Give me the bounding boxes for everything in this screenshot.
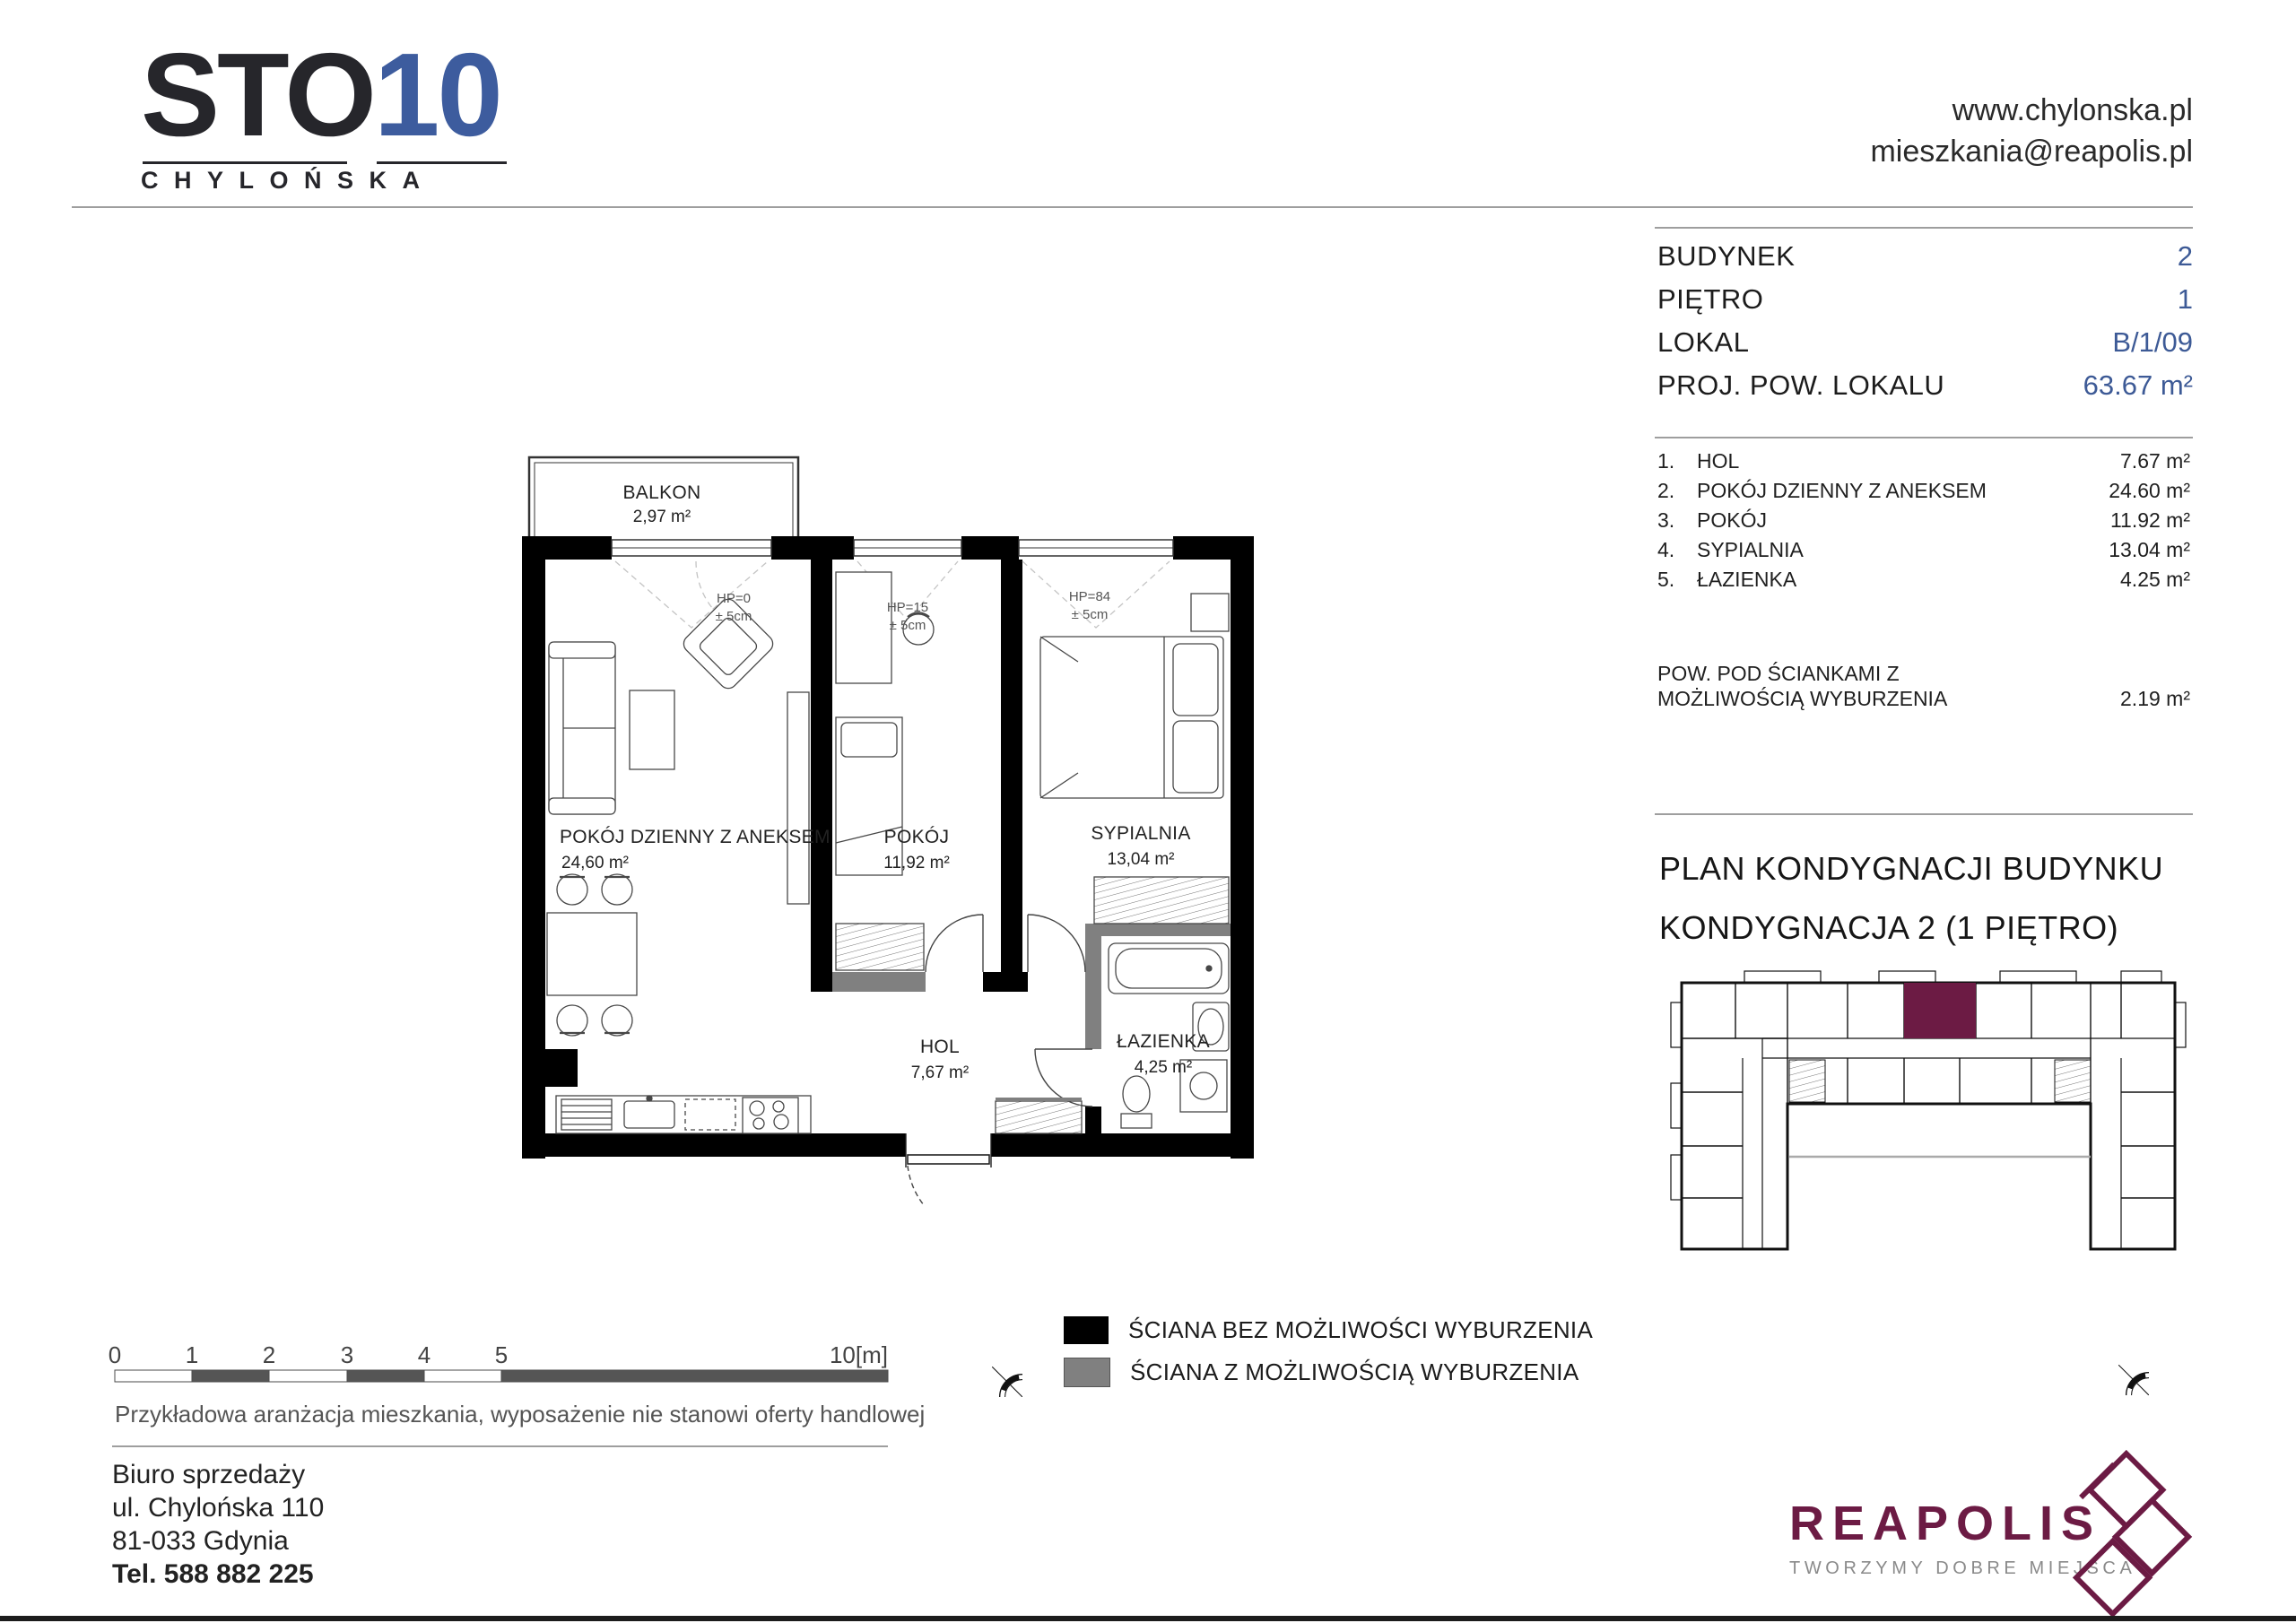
kitchen: [556, 1096, 811, 1133]
label-sypialnia: SYPIALNIA: [1091, 823, 1190, 844]
scale-tick: 0: [109, 1341, 121, 1368]
single-bed: [836, 717, 902, 875]
hp-annotations: HP=0 ± 5cm HP=15 ± 5cm HP=84 ± 5cm: [716, 589, 1111, 633]
logo-sto: STO: [141, 29, 374, 161]
info-value: 63.67 m²: [2083, 369, 2193, 402]
note-value: 2.19 m²: [2120, 686, 2190, 711]
building-keyplan: [1655, 949, 2211, 1258]
note-line2: MOŻLIWOŚCIĄ WYBURZENIA: [1657, 686, 1947, 711]
legend-row-solid-wall: ŚCIANA BEZ MOŻLIWOŚCI WYBURZENIA: [1064, 1316, 1593, 1344]
info-label: PROJ. POW. LOKALU: [1657, 369, 1944, 402]
dining-set: [547, 874, 637, 1036]
reapolis-diamonds-icon: [2054, 1449, 2206, 1623]
tv-unit: [787, 692, 809, 904]
room-number: 1.: [1657, 449, 1697, 473]
hp-label: HP=15: [887, 600, 928, 615]
sto10-logo: STO10 CHYLOŃSKA: [141, 36, 500, 195]
hp-label: ± 5cm: [1072, 607, 1109, 622]
header-divider: [72, 206, 2193, 208]
info-label: BUDYNEK: [1657, 240, 1795, 273]
keyplan-title-2: KONDYGNACJA 2 (1 PIĘTRO): [1659, 909, 2118, 947]
legend-row-demolishable-wall: ŚCIANA Z MOŻLIWOŚCIĄ WYBURZENIA: [1064, 1358, 1578, 1387]
hp-label: HP=84: [1069, 589, 1110, 604]
living-furniture: [547, 595, 809, 1036]
panel-divider-top: [1655, 227, 2193, 229]
toilet: [1121, 1076, 1152, 1128]
balcony: BALKON 2,97 m²: [529, 457, 798, 536]
door-pokoj: [926, 915, 983, 972]
keyplan-stairs-left: [1789, 1060, 1825, 1102]
room-name: HOL: [1697, 449, 1739, 473]
info-value: 2: [2178, 240, 2193, 273]
scale-tick: 1: [186, 1341, 198, 1368]
balcony-name: BALKON: [623, 482, 701, 503]
room-area: 11.92 m²: [2110, 508, 2190, 533]
door-entrance: [906, 1133, 991, 1205]
room-row: 1. HOL 7.67 m²: [1657, 447, 2190, 476]
office-phone: Tel. 588 882 225: [112, 1558, 324, 1591]
scale-tick: 4: [418, 1341, 430, 1368]
floorplan-sheet: STO10 CHYLOŃSKA www.chylonska.pl mieszka…: [0, 0, 2296, 1623]
room-number: 2.: [1657, 479, 1697, 503]
kitchen-drawers: [561, 1099, 612, 1130]
hp-label: ± 5cm: [716, 609, 752, 624]
keyplan-title-1: PLAN KONDYGNACJI BUDYNKU: [1659, 850, 2163, 888]
email: mieszkania@reapolis.pl: [1870, 131, 2193, 172]
compass-icon: [935, 1309, 1022, 1397]
office-line: ul. Chylońska 110: [112, 1491, 324, 1524]
window-living: [612, 540, 771, 556]
room-number: 5.: [1657, 568, 1697, 592]
label-hol-area: 7,67 m²: [911, 1063, 969, 1082]
door-sypialnia: [1028, 915, 1085, 972]
double-bed: [1040, 637, 1223, 798]
info-row-powierzchnia: PROJ. POW. LOKALU 63.67 m²: [1657, 364, 2193, 407]
contact-block: www.chylonska.pl mieszkania@reapolis.pl: [1870, 90, 2193, 172]
office-line: Biuro sprzedaży: [112, 1458, 324, 1491]
room-area: 13.04 m²: [2109, 538, 2190, 562]
scale-ticks: 0 1 2 3 4 5 10[m]: [109, 1341, 888, 1368]
office-line: 81-033 Gdynia: [112, 1524, 324, 1558]
note-line1: POW. POD ŚCIANKAMI Z: [1657, 661, 2190, 686]
legend-label: ŚCIANA BEZ MOŻLIWOŚCI WYBURZENIA: [1128, 1316, 1593, 1344]
info-row-pietro: PIĘTRO 1: [1657, 278, 2193, 321]
legend-swatch-gray: [1064, 1358, 1110, 1387]
hp-label: ± 5cm: [890, 618, 926, 633]
page-bottom-border: [0, 1616, 2296, 1621]
scale-tick: 3: [341, 1341, 353, 1368]
legend-swatch-black: [1064, 1316, 1109, 1344]
room-row: 5. ŁAZIENKA 4.25 m²: [1657, 565, 2190, 595]
room-name: POKÓJ DZIENNY Z ANEKSEM: [1697, 479, 1987, 503]
nightstand: [1191, 594, 1229, 631]
room-name: SYPIALNIA: [1697, 538, 1804, 562]
coffee-table: [630, 690, 674, 769]
label-pokoj: POKÓJ: [884, 827, 950, 847]
info-row-lokal: LOKAL B/1/09: [1657, 321, 2193, 364]
room-area: 7.67 m²: [2120, 449, 2190, 473]
hp-label: HP=0: [717, 591, 751, 606]
doors: [906, 915, 1092, 1205]
scale-tick: 2: [263, 1341, 275, 1368]
scale-segments: [115, 1370, 888, 1382]
info-label: LOKAL: [1657, 326, 1749, 359]
balcony-area: 2,97 m²: [633, 508, 691, 526]
scale-tick: 5: [495, 1341, 508, 1368]
demolition-note: POW. POD ŚCIANKAMI Z MOŻLIWOŚCIĄ WYBURZE…: [1657, 661, 2190, 711]
logo-rule-left: [143, 161, 347, 164]
scale-end-label: 10[m]: [830, 1341, 888, 1368]
room-name: POKÓJ: [1697, 508, 1767, 533]
room-row: 4. SYPIALNIA 13.04 m²: [1657, 535, 2190, 565]
room-row: 2. POKÓJ DZIENNY Z ANEKSEM 24.60 m²: [1657, 476, 2190, 506]
logo-subtitle: CHYLOŃSKA: [141, 167, 500, 195]
keyplan-highlighted-unit: [1904, 983, 1976, 1038]
room-number: 4.: [1657, 538, 1697, 562]
room-name: ŁAZIENKA: [1697, 568, 1796, 592]
hol-wardrobe: [996, 1099, 1082, 1133]
room-number: 3.: [1657, 508, 1697, 533]
panel-divider-keyplan: [1655, 813, 2193, 815]
panel-divider-rooms: [1655, 437, 2193, 438]
scale-bar: 0 1 2 3 4 5 10[m]: [90, 1336, 915, 1399]
info-value: B/1/09: [2112, 326, 2193, 359]
label-living-area: 24,60 m²: [561, 854, 629, 872]
logo-text: STO10: [141, 36, 500, 154]
sypialnia-furniture: [1040, 594, 1229, 924]
info-label: PIĘTRO: [1657, 283, 1763, 316]
keyplan-stairs-right: [2055, 1060, 2091, 1102]
compass-icon: [2061, 1307, 2149, 1395]
label-sypialnia-area: 13,04 m²: [1108, 850, 1175, 869]
website: www.chylonska.pl: [1870, 90, 2193, 131]
info-row-budynek: BUDYNEK 2: [1657, 235, 2193, 278]
label-lazienka-area: 4,25 m²: [1135, 1058, 1192, 1077]
sales-office-block: Biuro sprzedaży ul. Chylońska 110 81-033…: [112, 1458, 324, 1591]
desk: [836, 572, 891, 683]
kitchen-sink: [624, 1096, 674, 1128]
sofa: [549, 642, 615, 814]
room-row: 3. POKÓJ 11.92 m²: [1657, 506, 2190, 535]
label-living: POKÓJ DZIENNY Z ANEKSEM: [560, 827, 831, 847]
bathtub: [1109, 943, 1229, 994]
label-lazienka: ŁAZIENKA: [1117, 1031, 1210, 1052]
hob: [743, 1098, 798, 1133]
label-pokoj-area: 11,92 m²: [883, 854, 950, 872]
legend-label: ŚCIANA Z MOŻLIWOŚCIĄ WYBURZENIA: [1130, 1358, 1578, 1386]
logo-rule-right: [377, 161, 507, 164]
office-divider: [112, 1445, 888, 1447]
info-value: 1: [2178, 283, 2193, 316]
sypialnia-wardrobe: [1094, 877, 1229, 924]
pokoj-wardrobe: [836, 924, 924, 970]
apartment-floorplan: BALKON 2,97 m²: [502, 421, 1274, 1211]
window-pokoj: [854, 540, 961, 556]
label-hol: HOL: [920, 1037, 960, 1057]
arrangement-caption: Przykładowa aranżacja mieszkania, wyposa…: [115, 1401, 925, 1428]
room-area: 4.25 m²: [2120, 568, 2190, 592]
dishwasher: [685, 1099, 735, 1130]
logo-ten: 10: [374, 29, 500, 161]
window-sypialnia: [1019, 540, 1173, 556]
room-area: 24.60 m²: [2109, 479, 2190, 503]
